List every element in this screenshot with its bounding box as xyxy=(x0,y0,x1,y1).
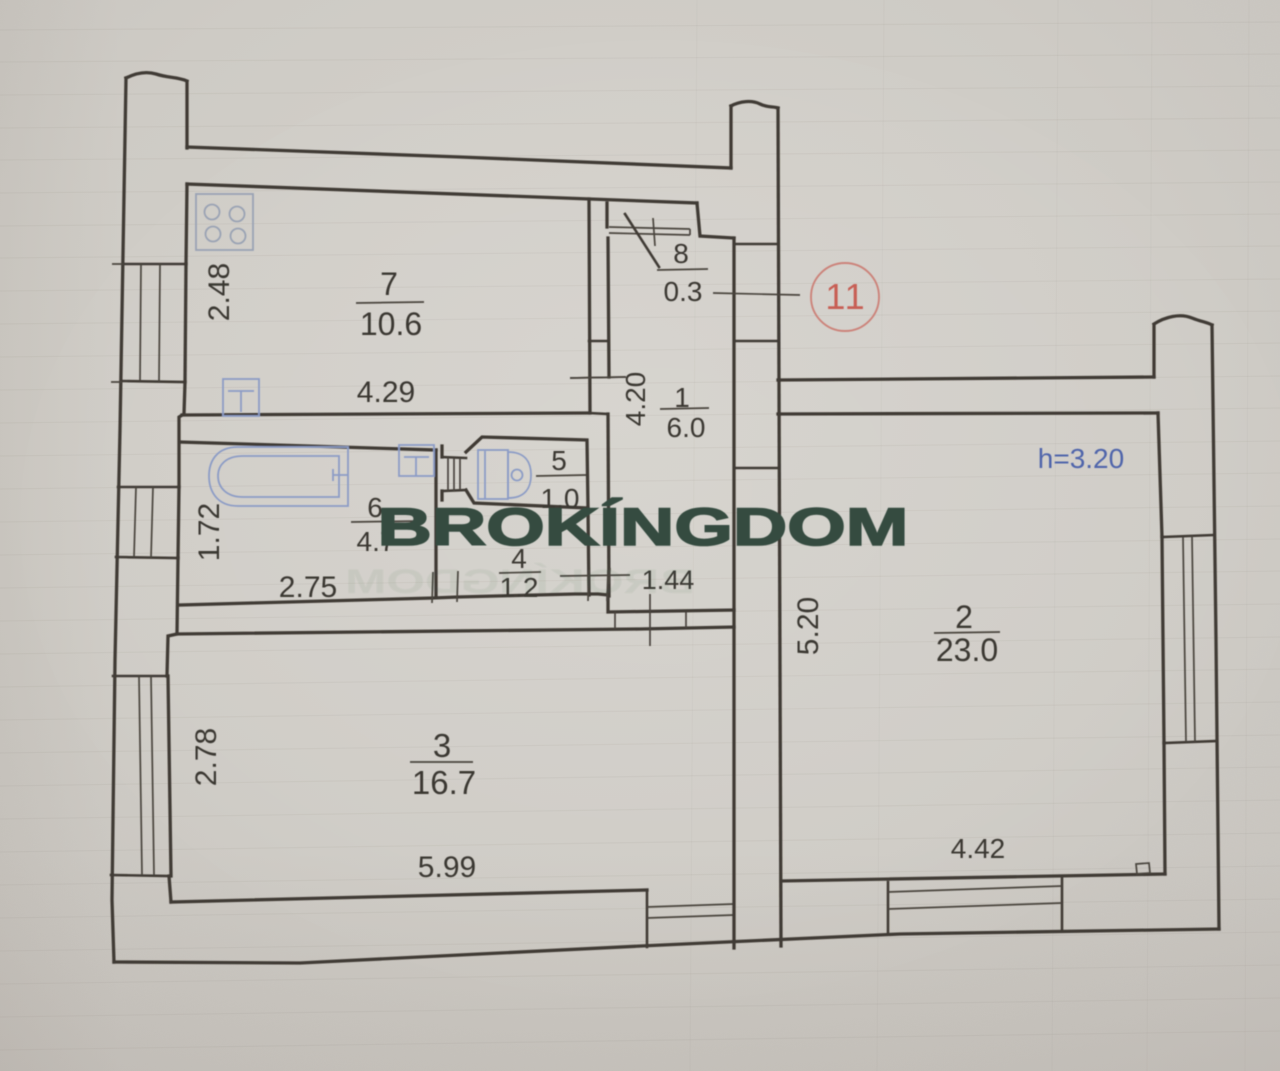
svg-text:5: 5 xyxy=(551,445,567,476)
svg-text:2: 2 xyxy=(955,599,973,635)
svg-text:8: 8 xyxy=(673,238,689,269)
svg-text:2.78: 2.78 xyxy=(190,728,223,786)
svg-text:5.99: 5.99 xyxy=(418,851,476,884)
svg-text:BROKÍNGDOM: BROKÍNGDOM xyxy=(345,563,695,601)
svg-text:2.75: 2.75 xyxy=(279,571,337,604)
svg-text:23.0: 23.0 xyxy=(936,632,998,668)
svg-text:3: 3 xyxy=(433,727,451,764)
svg-text:1.72: 1.72 xyxy=(193,503,226,561)
svg-text:11: 11 xyxy=(825,276,866,317)
svg-text:2.48: 2.48 xyxy=(203,263,236,321)
svg-text:BROKÍNGDOM: BROKÍNGDOM xyxy=(378,497,909,557)
svg-text:10.6: 10.6 xyxy=(360,306,422,342)
svg-text:4.20: 4.20 xyxy=(620,372,651,427)
svg-text:4.29: 4.29 xyxy=(357,376,415,409)
svg-text:5.20: 5.20 xyxy=(792,597,825,655)
svg-text:16.7: 16.7 xyxy=(412,764,476,801)
svg-text:6.0: 6.0 xyxy=(667,412,706,443)
svg-text:0.3: 0.3 xyxy=(664,276,703,307)
svg-text:4.42: 4.42 xyxy=(951,833,1006,864)
svg-text:h=3.20: h=3.20 xyxy=(1038,443,1124,474)
svg-text:7: 7 xyxy=(380,266,398,302)
